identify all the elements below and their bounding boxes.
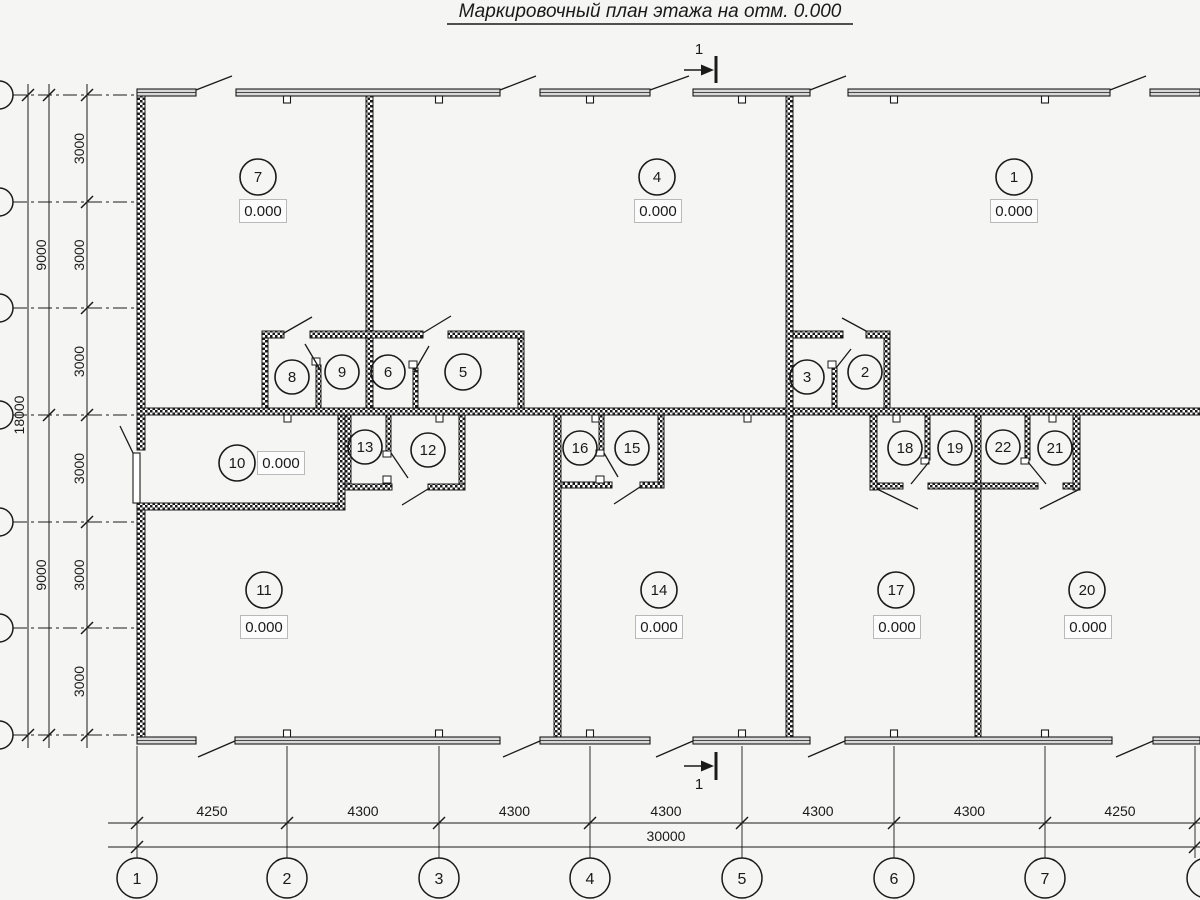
window-sash-icon bbox=[500, 76, 536, 90]
column-marker bbox=[284, 96, 291, 103]
exterior-wall-left bbox=[137, 96, 145, 450]
door-swing-icon bbox=[284, 317, 312, 333]
column-marker bbox=[436, 730, 443, 737]
room-number: 5 bbox=[459, 364, 467, 381]
dim-label: 4300 bbox=[347, 803, 378, 819]
section-label: 1 bbox=[695, 776, 703, 793]
window-sash-icon bbox=[650, 76, 689, 90]
section-label: 1 bbox=[695, 41, 703, 58]
column-marker bbox=[1042, 96, 1049, 103]
column-marker bbox=[436, 96, 443, 103]
row-axis-bubble bbox=[0, 188, 13, 216]
room-number: 22 bbox=[995, 439, 1012, 456]
corridor-wall bbox=[137, 408, 1200, 415]
section-mark-bottom: 1 bbox=[684, 752, 716, 793]
room-number: 4 bbox=[653, 169, 661, 186]
room-number: 14 bbox=[651, 582, 668, 599]
room-number: 3 bbox=[803, 369, 811, 386]
axis-label: 7 bbox=[1041, 871, 1050, 888]
room-number: 15 bbox=[624, 440, 641, 457]
dim-label: 4300 bbox=[802, 803, 833, 819]
room-number: 19 bbox=[947, 440, 964, 457]
room-number: 17 bbox=[888, 582, 905, 599]
column-marker bbox=[891, 730, 898, 737]
column-axis-bubble bbox=[1187, 858, 1200, 898]
partition-wall bbox=[554, 415, 561, 737]
column-marker bbox=[587, 730, 594, 737]
row-axis-bubble bbox=[0, 508, 13, 536]
elevation-value: 0.000 bbox=[245, 619, 283, 636]
room10-wall bbox=[338, 415, 345, 510]
dim-label: 3000 bbox=[71, 133, 87, 164]
door-swing-icon bbox=[391, 453, 408, 478]
dim-label: 30000 bbox=[647, 828, 686, 844]
axis-label: 2 bbox=[283, 871, 292, 888]
room-number: 2 bbox=[861, 364, 869, 381]
elevation-value: 0.000 bbox=[1069, 619, 1107, 636]
window-sash-icon bbox=[656, 741, 693, 757]
room-number: 13 bbox=[357, 439, 374, 456]
column-marker bbox=[739, 96, 746, 103]
axis-label: 1 bbox=[133, 871, 142, 888]
row-axis-bubble bbox=[0, 721, 13, 749]
floor-plan-drawing: Маркировочный план этажа на отм. 0.000 bbox=[0, 0, 1200, 900]
dim-label: 4300 bbox=[499, 803, 530, 819]
door-leaf bbox=[133, 453, 140, 503]
dim-label: 3000 bbox=[71, 453, 87, 484]
axis-label: 3 bbox=[435, 871, 444, 888]
door-swing-icon bbox=[120, 426, 133, 453]
row-axis-bubble bbox=[0, 294, 13, 322]
drawing-title: Маркировочный план этажа на отм. 0.000 bbox=[447, 1, 853, 24]
window-sash-icon bbox=[503, 741, 540, 757]
door-swing-icon bbox=[1040, 489, 1080, 509]
exterior-wall-left bbox=[137, 505, 145, 737]
walls bbox=[137, 96, 1200, 737]
room10-wall bbox=[137, 503, 345, 510]
page-title: Маркировочный план этажа на отм. 0.000 bbox=[459, 1, 842, 22]
column-marker bbox=[284, 730, 291, 737]
partition-wall bbox=[786, 96, 793, 737]
door-swing-icon bbox=[604, 453, 618, 477]
dim-label: 4300 bbox=[650, 803, 681, 819]
elevation-value: 0.000 bbox=[262, 455, 300, 472]
dim-label: 4250 bbox=[196, 803, 227, 819]
window-sash-icon bbox=[1110, 76, 1146, 90]
row-axis-bubble bbox=[0, 614, 13, 642]
room-number: 11 bbox=[256, 582, 272, 599]
axis-label: 4 bbox=[586, 871, 595, 888]
room-number: 1 bbox=[1010, 169, 1018, 186]
top-window-band bbox=[137, 76, 1200, 103]
room-number: 10 bbox=[229, 455, 246, 472]
elevation-value: 0.000 bbox=[878, 619, 916, 636]
room-number: 18 bbox=[897, 440, 914, 457]
door-swing-icon bbox=[877, 489, 918, 509]
axis-label: 5 bbox=[738, 871, 747, 888]
column-marker bbox=[739, 730, 746, 737]
door-swing-icon bbox=[423, 316, 451, 333]
dim-label: 9000 bbox=[33, 239, 49, 270]
room-number: 20 bbox=[1079, 582, 1096, 599]
room-number: 9 bbox=[338, 364, 346, 381]
window-sash-icon bbox=[198, 741, 235, 757]
door-swing-icon bbox=[911, 462, 929, 484]
door-jambs bbox=[284, 358, 1056, 483]
column-marker bbox=[1042, 730, 1049, 737]
elevation-value: 0.000 bbox=[995, 203, 1033, 220]
section-arrow-icon bbox=[701, 761, 714, 772]
dim-label: 3000 bbox=[71, 239, 87, 270]
axis-label: 6 bbox=[890, 871, 899, 888]
room-number: 21 bbox=[1047, 440, 1064, 457]
row-axis-bubble bbox=[0, 81, 13, 109]
window-sash-icon bbox=[1116, 741, 1153, 757]
dim-label: 3000 bbox=[71, 346, 87, 377]
door-swing-icon bbox=[614, 487, 640, 504]
dim-label: 9000 bbox=[33, 559, 49, 590]
elevation-value: 0.000 bbox=[639, 203, 677, 220]
room-number: 8 bbox=[288, 369, 296, 386]
dim-label: 4250 bbox=[1104, 803, 1135, 819]
section-arrow-icon bbox=[701, 65, 714, 76]
column-marker bbox=[587, 96, 594, 103]
room-number: 16 bbox=[572, 440, 589, 457]
door-swing-icon bbox=[402, 489, 428, 505]
partition-wall bbox=[366, 96, 373, 408]
elevation-value: 0.000 bbox=[244, 203, 282, 220]
window-sash-icon bbox=[196, 76, 232, 90]
window-sash-icon bbox=[808, 741, 845, 757]
door-swing-icon bbox=[1028, 462, 1046, 484]
dim-label: 18000 bbox=[11, 395, 27, 434]
bottom-window-band bbox=[137, 730, 1200, 757]
door-swing-icon bbox=[414, 346, 429, 372]
room-number: 7 bbox=[254, 169, 262, 186]
window-sash-icon bbox=[810, 76, 846, 90]
column-marker bbox=[891, 96, 898, 103]
dim-label: 3000 bbox=[71, 666, 87, 697]
room-number: 12 bbox=[420, 442, 437, 459]
elevation-value: 0.000 bbox=[640, 619, 678, 636]
floor-plan-page: Маркировочный план этажа на отм. 0.000 bbox=[0, 0, 1200, 900]
door-swing-icon bbox=[842, 318, 866, 331]
partition-wall bbox=[975, 415, 981, 737]
room-number: 6 bbox=[384, 364, 392, 381]
dim-label: 4300 bbox=[954, 803, 985, 819]
dim-label: 3000 bbox=[71, 559, 87, 590]
